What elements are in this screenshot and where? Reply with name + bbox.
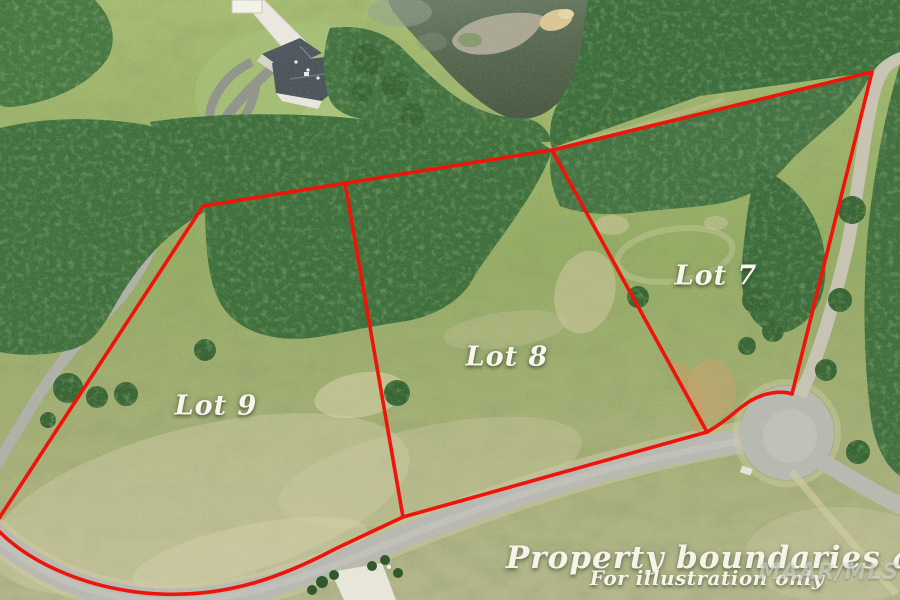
mls-watermark: MAAR/MLS [758,560,899,585]
aerial-photo [0,0,900,600]
grain-texture [0,0,900,600]
mailbox [387,565,391,569]
aerial-photo-stage: Lot 7 Lot 8 Lot 9 Property boundaries ar… [0,0,900,600]
